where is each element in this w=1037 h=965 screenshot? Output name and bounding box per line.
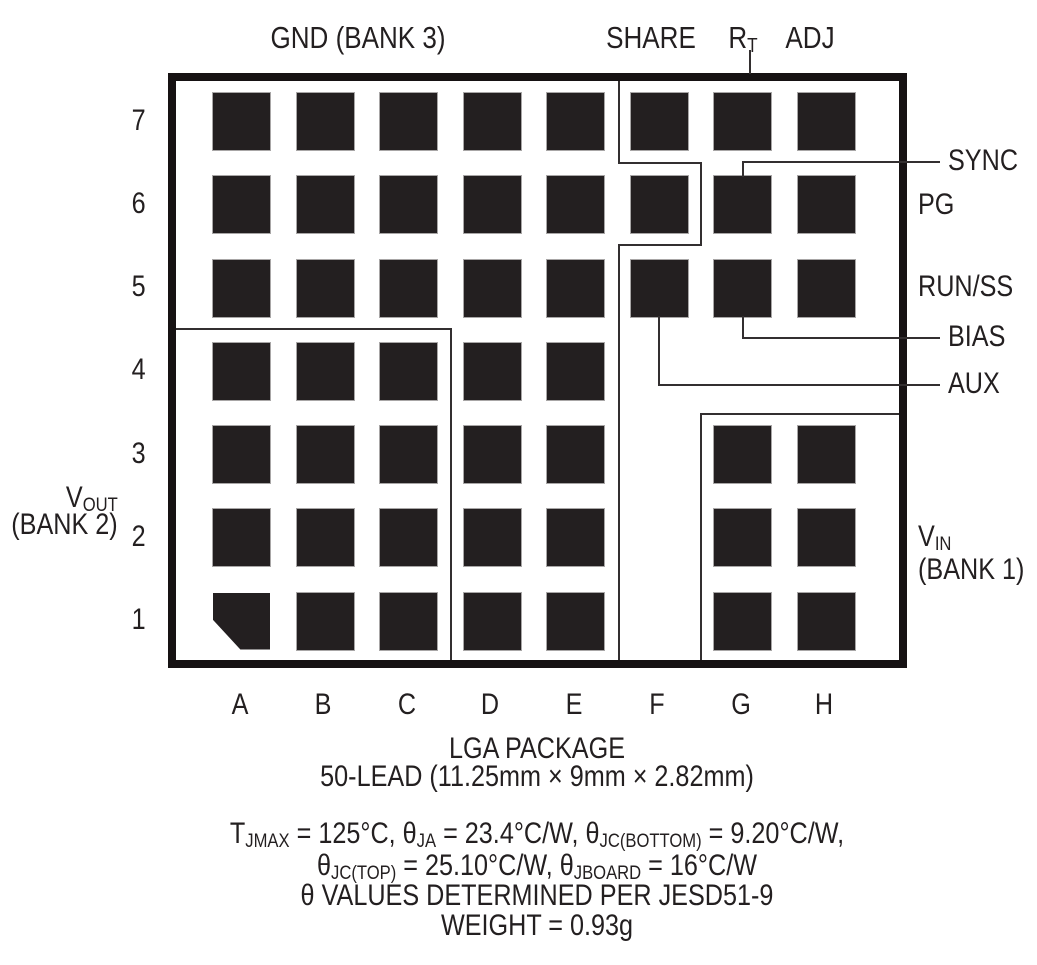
col-label-B: B bbox=[315, 688, 332, 722]
row-label-3: 3 bbox=[132, 437, 146, 471]
col-label-D: D bbox=[481, 688, 499, 722]
col-label-F: F bbox=[649, 688, 664, 722]
label-vin: VIN bbox=[918, 520, 951, 554]
row-label-2: 2 bbox=[132, 520, 146, 554]
col-label-C: C bbox=[397, 688, 415, 722]
label-pg: PG bbox=[918, 188, 954, 222]
row-label-1: 1 bbox=[132, 603, 146, 637]
note-weight: WEIGHT = 0.93g bbox=[441, 911, 633, 941]
row-label-7: 7 bbox=[132, 104, 146, 138]
bank1-outline bbox=[701, 414, 899, 660]
label-rt: RT bbox=[728, 21, 757, 55]
label-run-ss: RUN/SS bbox=[918, 270, 1013, 304]
col-label-E: E bbox=[565, 688, 582, 722]
row-label-4: 4 bbox=[132, 353, 146, 387]
sync-leader-line bbox=[743, 162, 940, 177]
label-vin-bank: (BANK 1) bbox=[918, 553, 1024, 587]
pinout-figure: GND (BANK 3) SHARE RT ADJ SYNC PG RUN/SS… bbox=[0, 0, 1037, 965]
label-share: SHARE bbox=[606, 21, 696, 55]
row-label-6: 6 bbox=[132, 187, 146, 221]
label-vout-bank: (BANK 2) bbox=[12, 508, 118, 542]
bank2-outline bbox=[176, 329, 451, 660]
label-aux: AUX bbox=[948, 367, 1000, 401]
row-label-5: 5 bbox=[132, 270, 146, 304]
label-sync: SYNC bbox=[948, 144, 1018, 178]
label-adj: ADJ bbox=[785, 21, 834, 55]
label-gnd-bank3: GND (BANK 3) bbox=[270, 21, 445, 55]
bias-leader-line bbox=[743, 316, 940, 338]
col-label-A: A bbox=[231, 688, 248, 722]
col-label-G: G bbox=[731, 688, 751, 722]
label-bias: BIAS bbox=[948, 320, 1005, 354]
caption-lead-count: 50-LEAD (11.25mm × 9mm × 2.82mm) bbox=[320, 762, 754, 792]
note-thermal-2: θJC(TOP) = 25.10°C/W, θJBOARD = 16°C/W bbox=[317, 851, 757, 881]
col-label-H: H bbox=[815, 688, 833, 722]
note-jesd: θ VALUES DETERMINED PER JESD51-9 bbox=[301, 881, 774, 911]
aux-leader-line bbox=[659, 316, 940, 385]
note-thermal-1: TJMAX = 125°C, θJA = 23.4°C/W, θJC(BOTTO… bbox=[230, 819, 844, 849]
